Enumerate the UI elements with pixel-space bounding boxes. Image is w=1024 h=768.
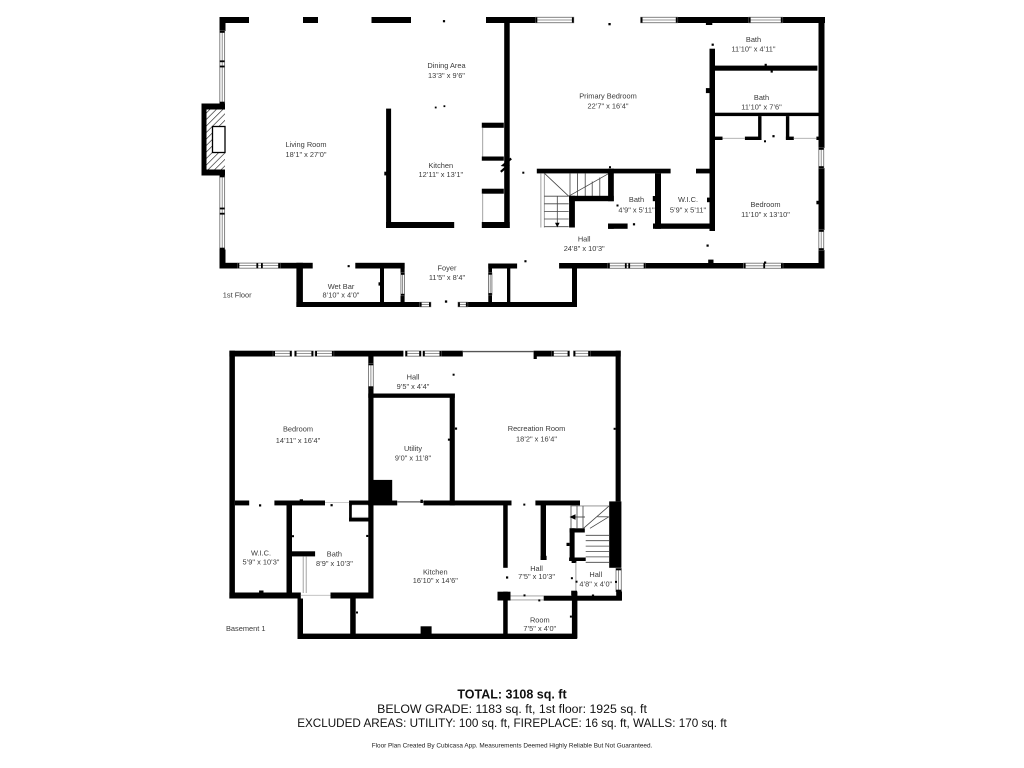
svg-text:1st Floor: 1st Floor (223, 290, 252, 299)
svg-text:Bedroom: Bedroom (751, 200, 781, 209)
svg-text:EXCLUDED AREAS: UTILITY: 100 s: EXCLUDED AREAS: UTILITY: 100 sq. ft, FIR… (297, 717, 727, 730)
svg-text:Dining Area: Dining Area (427, 61, 466, 70)
svg-text:Primary Bedroom: Primary Bedroom (579, 91, 637, 100)
svg-text:11’10" x 13’10": 11’10" x 13’10" (741, 210, 790, 219)
svg-text:W.I.C.: W.I.C. (678, 195, 698, 204)
svg-text:W.I.C.: W.I.C. (251, 548, 271, 557)
svg-text:TOTAL: 3108 sq. ft: TOTAL: 3108 sq. ft (457, 688, 567, 702)
svg-text:Living Room: Living Room (285, 140, 326, 149)
svg-text:BELOW GRADE: 1183 sq. ft, 1st: BELOW GRADE: 1183 sq. ft, 1st floor: 192… (377, 702, 647, 716)
svg-text:8’10" x 4’0": 8’10" x 4’0" (323, 291, 360, 300)
svg-text:18’2" x 16’4": 18’2" x 16’4" (516, 435, 557, 444)
svg-text:7’5" x 10’3": 7’5" x 10’3" (518, 572, 555, 581)
svg-text:4’9" x 5’11": 4’9" x 5’11" (618, 206, 655, 215)
svg-text:Bath: Bath (327, 549, 342, 558)
svg-text:22’7" x 16’4": 22’7" x 16’4" (588, 101, 629, 110)
svg-text:Hall: Hall (578, 235, 591, 244)
svg-text:14’11" x 16’4": 14’11" x 16’4" (276, 436, 321, 445)
svg-text:16’10" x 14’6": 16’10" x 14’6" (413, 576, 458, 585)
svg-text:Bath: Bath (754, 93, 769, 102)
svg-text:13’3" x 9’6": 13’3" x 9’6" (428, 71, 465, 80)
svg-text:11’10" x 4’11": 11’10" x 4’11" (731, 44, 775, 53)
svg-text:24’8" x 10’3": 24’8" x 10’3" (564, 244, 605, 253)
svg-text:Utility: Utility (404, 444, 422, 453)
svg-text:11’5" x 8’4": 11’5" x 8’4" (429, 273, 466, 282)
svg-text:18’1" x 27’0": 18’1" x 27’0" (286, 150, 327, 159)
svg-text:12’11" x 13’1": 12’11" x 13’1" (419, 170, 464, 179)
svg-text:Floor Plan Created By Cubicasa: Floor Plan Created By Cubicasa App. Meas… (372, 743, 653, 750)
svg-text:Bath: Bath (746, 35, 761, 44)
svg-text:5’9" x 5’11": 5’9" x 5’11" (670, 206, 707, 215)
svg-text:Bedroom: Bedroom (283, 425, 313, 434)
svg-text:11’10" x 7’6": 11’10" x 7’6" (741, 102, 782, 111)
svg-text:8’9" x 10’3": 8’9" x 10’3" (316, 559, 353, 568)
svg-text:Foyer: Foyer (438, 263, 457, 272)
svg-text:Hall: Hall (589, 570, 602, 579)
svg-text:4’8" x 4’0": 4’8" x 4’0" (579, 579, 612, 588)
svg-text:9’5" x 4’4": 9’5" x 4’4" (397, 382, 430, 391)
svg-text:5’9" x 10’3": 5’9" x 10’3" (243, 558, 280, 567)
svg-text:Recreation Room: Recreation Room (508, 424, 566, 433)
svg-text:Basement 1: Basement 1 (226, 624, 265, 633)
svg-text:9’0" x 11’8": 9’0" x 11’8" (395, 454, 432, 463)
svg-text:Bath: Bath (629, 195, 644, 204)
svg-text:Kitchen: Kitchen (428, 161, 453, 170)
svg-text:7’5" x 4’0": 7’5" x 4’0" (523, 624, 556, 633)
svg-text:Hall: Hall (407, 373, 420, 382)
